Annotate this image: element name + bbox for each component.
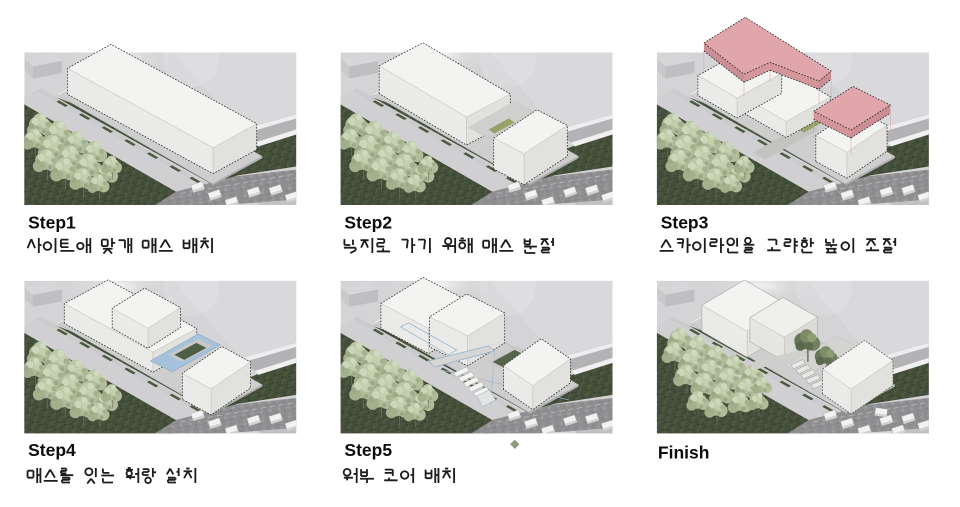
svg-text:Step2: Step2: [344, 213, 392, 233]
svg-text:Step4: Step4: [28, 440, 76, 460]
svg-text:Step1: Step1: [28, 213, 76, 233]
svg-text:Finish: Finish: [658, 443, 710, 463]
svg-text:Step5: Step5: [344, 440, 392, 460]
svg-text:Step3: Step3: [661, 213, 709, 233]
